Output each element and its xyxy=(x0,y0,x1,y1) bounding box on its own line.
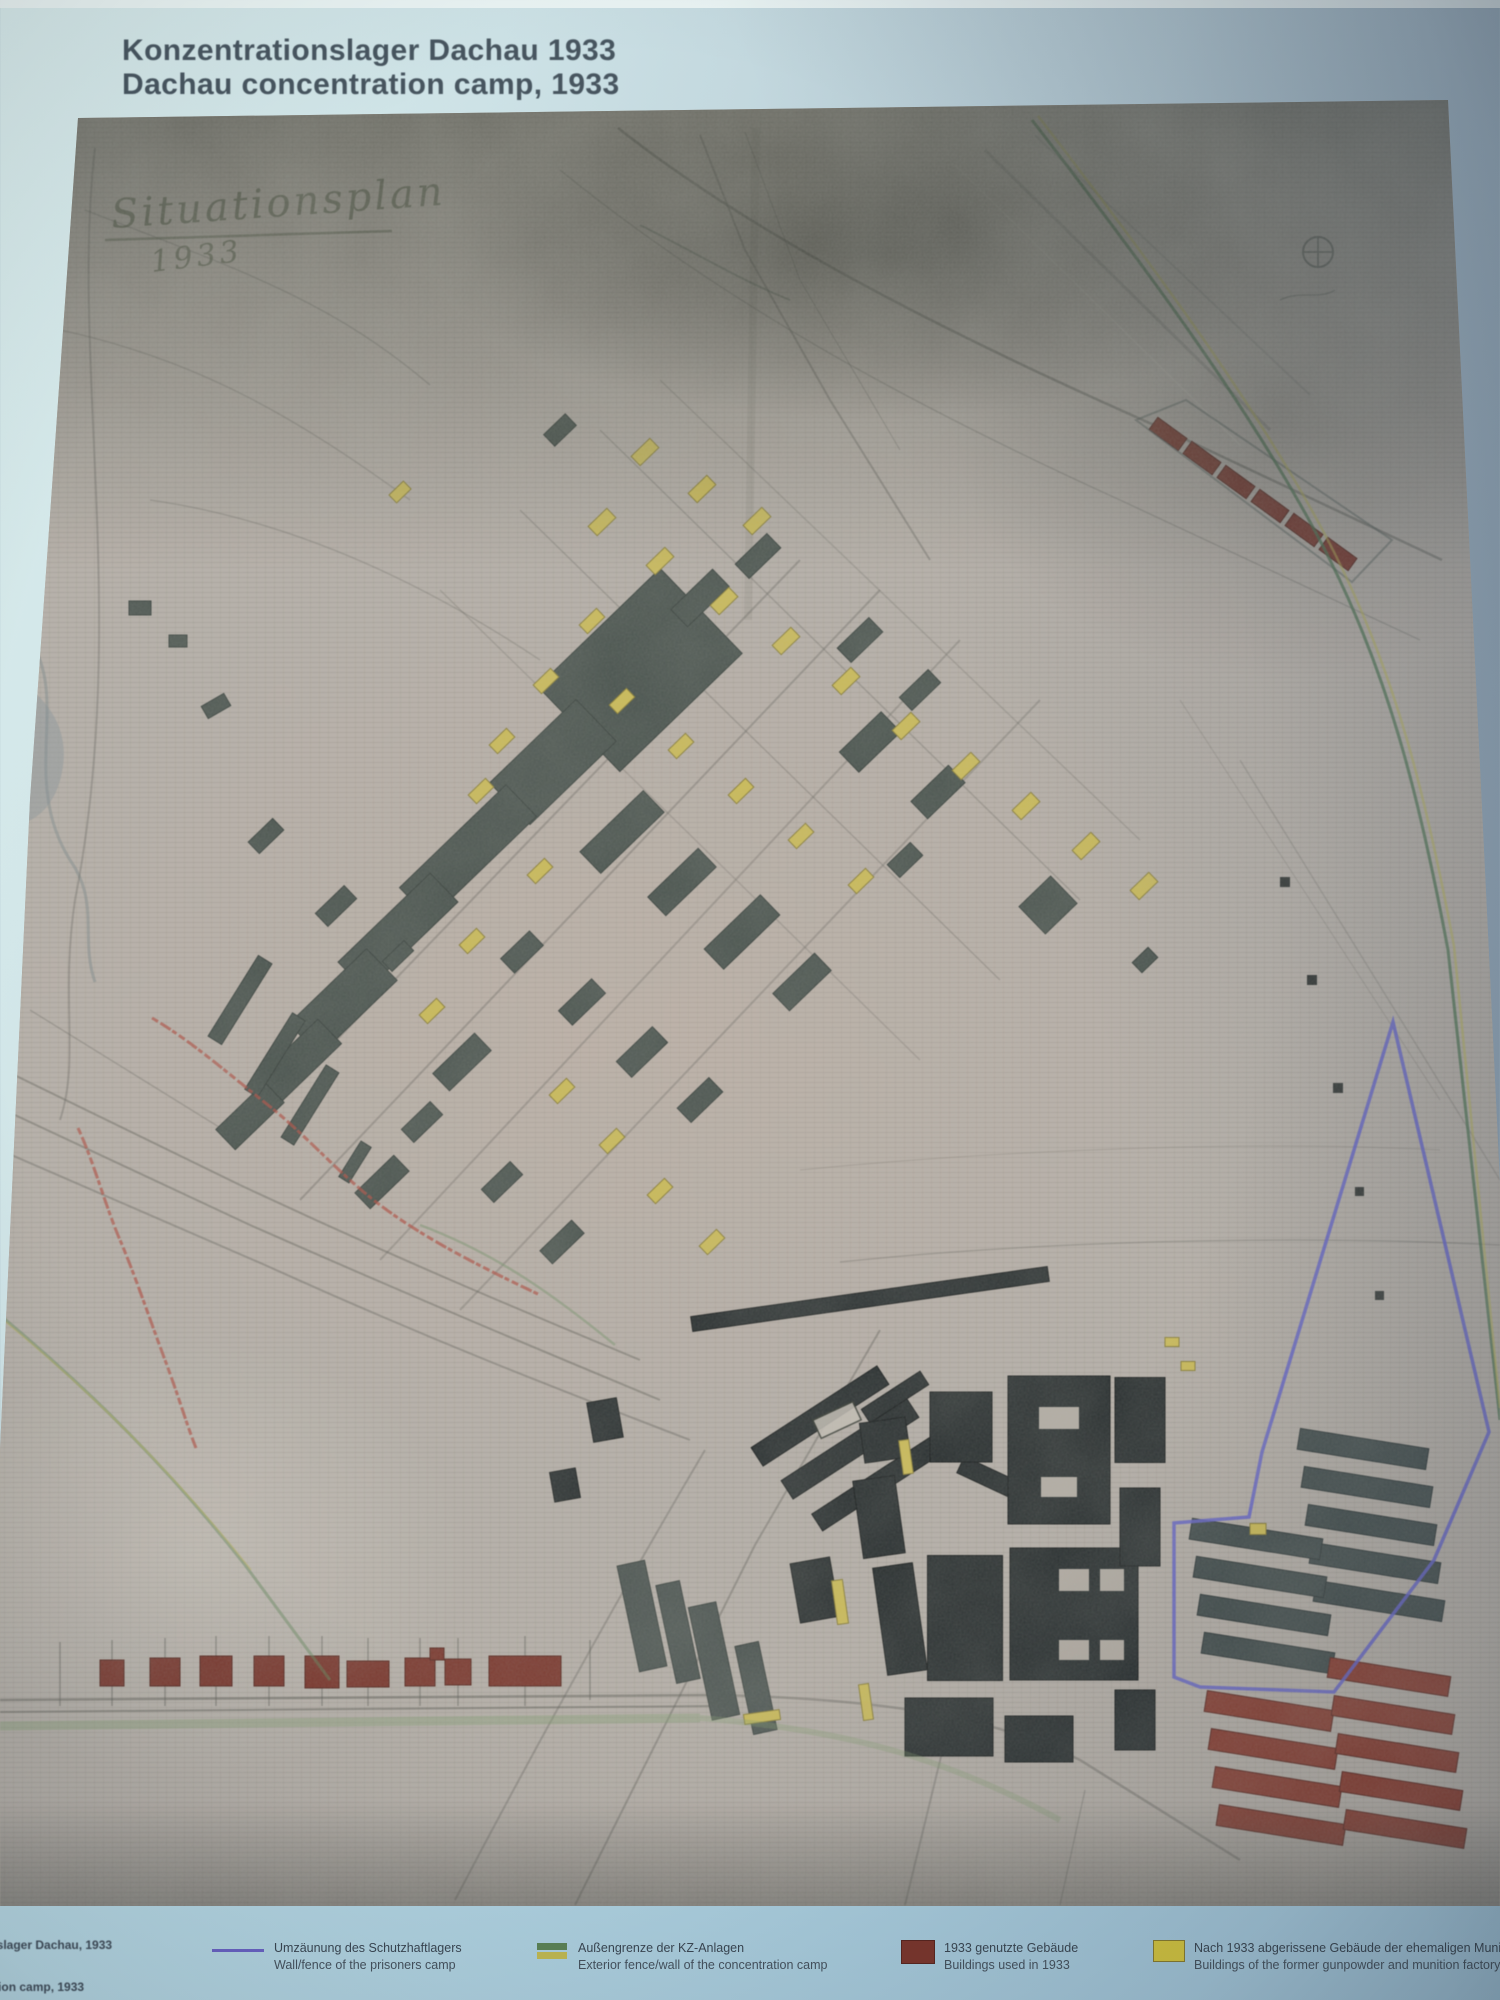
legend-label-en: Wall/fence of the prisoners camp xyxy=(274,1958,456,1972)
historic-site-map: Situationsplan 1933 xyxy=(0,0,1500,2000)
legend-item-demolished-buildings: Nach 1933 abgerissene Gebäude der ehemal… xyxy=(1153,1940,1500,1973)
legend-item-buildings-1933: 1933 genutzte Gebäude Buildings used in … xyxy=(901,1940,1078,1973)
legend-label-de: 1933 genutzte Gebäude xyxy=(944,1941,1078,1955)
panel-top-edge-highlight xyxy=(0,0,1500,8)
caption-german: Konzentrationslager Dachau, 1933 xyxy=(0,1938,112,1952)
legend-label-en: Exterior fence/wall of the concentration… xyxy=(578,1958,827,1972)
dark-red-swatch xyxy=(901,1940,935,1964)
legend-band: Konzentrationslager Dachau, 1933 Dachau … xyxy=(0,1906,1500,2000)
panel-title-english: Dachau concentration camp, 1933 xyxy=(122,68,620,102)
legend-label-de: Umzäunung des Schutzhaftlagers xyxy=(274,1941,462,1955)
green-bar xyxy=(537,1943,567,1950)
caption-english: Dachau concentration camp, 1933 xyxy=(0,1980,84,1994)
yellow-swatch xyxy=(1153,1940,1185,1962)
legend-label-en: Buildings used in 1933 xyxy=(944,1958,1070,1972)
map-photo: Situationsplan 1933 xyxy=(0,0,1500,2000)
panel-title: Konzentrationslager Dachau 1933 Dachau c… xyxy=(122,34,620,102)
legend-item-exterior-boundary: Außengrenze der KZ-Anlagen Exterior fenc… xyxy=(537,1940,827,1973)
photo-grain xyxy=(0,0,1500,2000)
legend-item-camp-wall: Umzäunung des Schutzhaftlagers Wall/fenc… xyxy=(212,1940,462,1973)
legend-label-de: Nach 1933 abgerissene Gebäude der ehemal… xyxy=(1194,1941,1500,1955)
legend-label-de: Außengrenze der KZ-Anlagen xyxy=(578,1941,744,1955)
green-yellow-swatch xyxy=(537,1943,567,1961)
panel-title-german: Konzentrationslager Dachau 1933 xyxy=(122,34,620,68)
legend-label-en: Buildings of the former gunpowder and mu… xyxy=(1194,1958,1500,1972)
yellow-bar xyxy=(537,1952,567,1959)
blue-line-swatch xyxy=(212,1949,264,1952)
